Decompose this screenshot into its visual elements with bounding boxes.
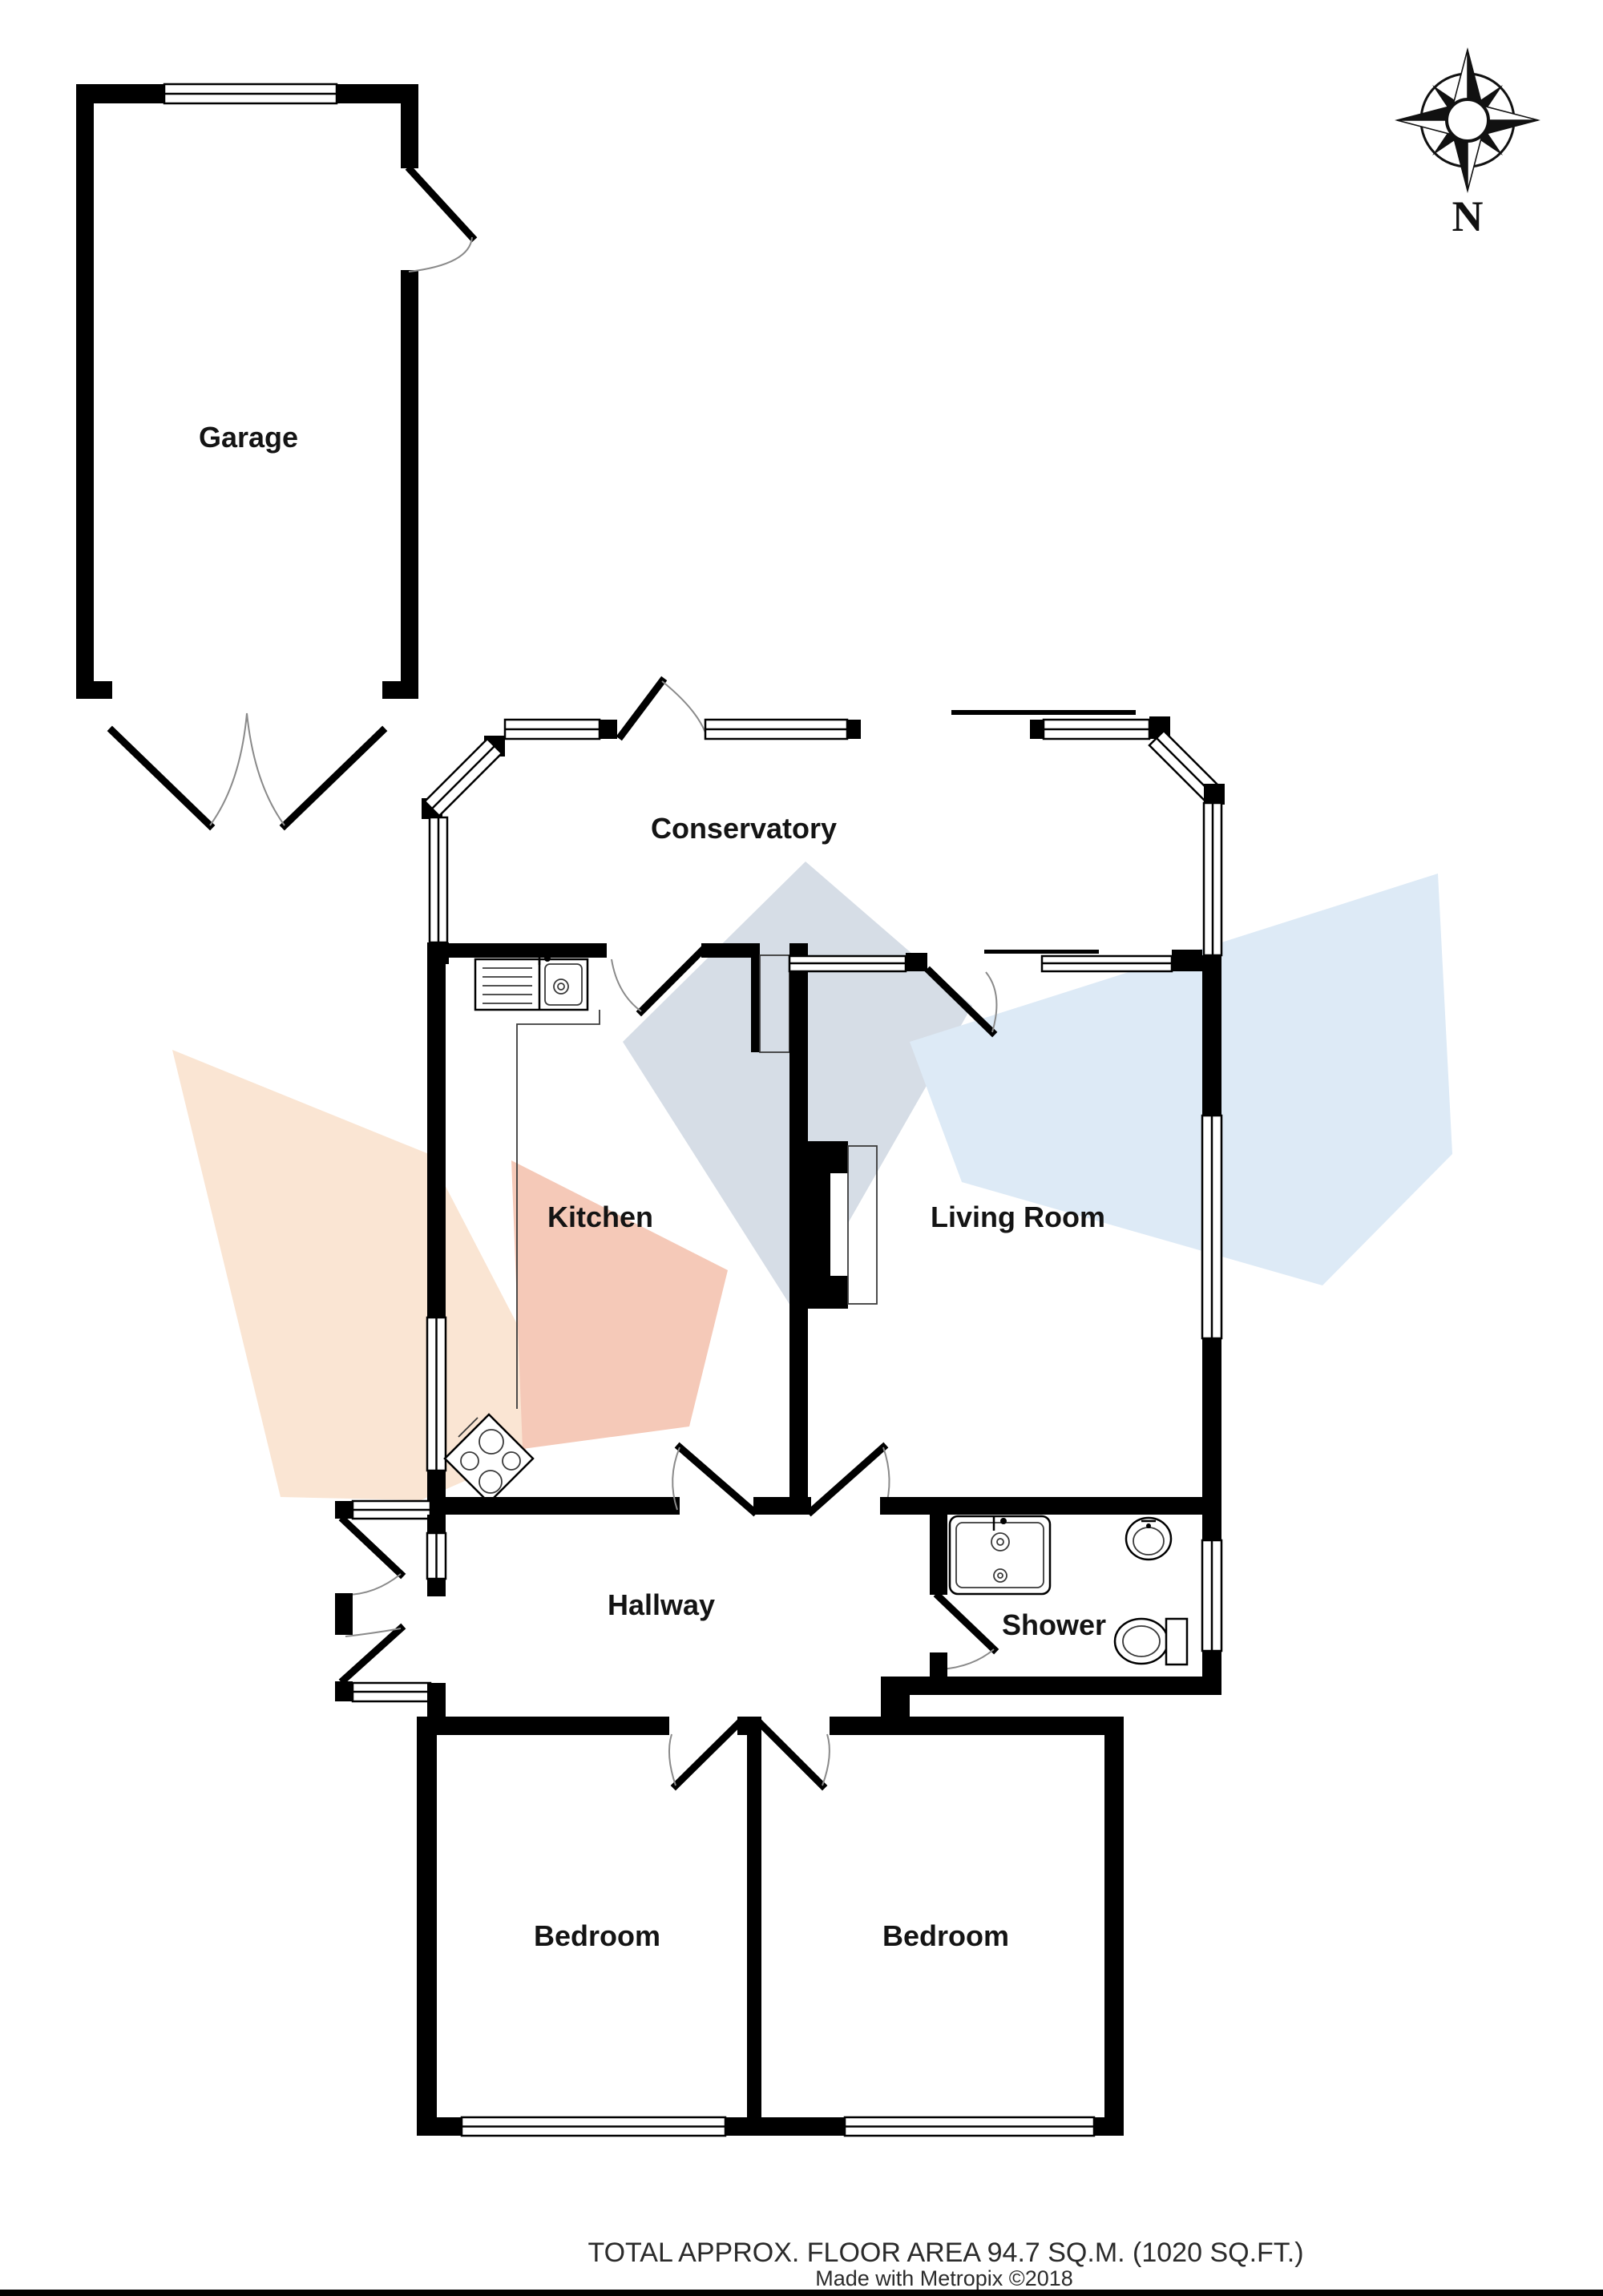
garage-west-wall — [76, 84, 94, 699]
garage-side-door — [409, 170, 472, 272]
conservatory-window-east — [1204, 803, 1221, 955]
conservatory-window-north-3 — [1044, 720, 1149, 739]
conservatory-window-north-2 — [705, 720, 847, 739]
porch-window-south — [353, 1683, 430, 1701]
bedroom-left-west-wall — [417, 1717, 437, 2136]
hallway-north-wall — [427, 1447, 1221, 1515]
kitchen-west-wall — [427, 942, 446, 1317]
livingroom-hallway-door — [811, 1447, 890, 1511]
toilet-icon — [1115, 1619, 1187, 1664]
house-outline-thin-wall — [951, 710, 1136, 715]
shower-west-wall-lower — [930, 1652, 947, 1677]
floor-plan: Garage — [0, 0, 1603, 2296]
garage-double-doors — [112, 713, 382, 825]
room-shower: Shower — [881, 1515, 1221, 1735]
bedroom-right-window — [845, 2117, 1094, 2136]
conservatory-label: Conservatory — [651, 812, 837, 845]
kitchen-sink-icon — [475, 954, 587, 1010]
compass-north-label: N — [1452, 192, 1484, 240]
bedroom-right-east-wall — [1104, 1717, 1124, 2136]
total-floor-area-text: TOTAL APPROX. FLOOR AREA 94.7 SQ.M. (102… — [587, 2237, 1303, 2268]
livingroom-window-north-2 — [1042, 956, 1172, 971]
basin-icon — [1126, 1518, 1171, 1560]
kitchen-hallway-door — [672, 1447, 753, 1511]
conservatory-window-north-1 — [505, 720, 600, 739]
garage-east-wall-upper — [401, 84, 418, 168]
bedroom-left-window — [462, 2117, 725, 2136]
front-door-lower — [344, 1628, 401, 1680]
bottom-border-bar — [0, 2290, 1603, 2296]
bedroom-left-door — [669, 1725, 737, 1786]
room-hallway: Hallway — [608, 1588, 715, 1621]
garage-label: Garage — [199, 421, 298, 454]
shower-tray-icon — [950, 1516, 1050, 1594]
bedroom-right-door — [761, 1725, 830, 1786]
entrance-porch — [335, 1501, 446, 1735]
hallway-label: Hallway — [608, 1588, 715, 1621]
porch-window-north — [353, 1501, 430, 1519]
conservatory-chamfer-window-left — [425, 739, 502, 816]
living-room-label: Living Room — [931, 1200, 1105, 1233]
garage-window-north — [164, 84, 337, 103]
bedroom-divider-wall — [747, 1735, 761, 2136]
shower-west-wall-upper — [930, 1515, 947, 1595]
front-door-upper — [344, 1520, 401, 1595]
livingroom-window-east — [1202, 1116, 1221, 1338]
bedroom-left-label: Bedroom — [534, 1919, 660, 1952]
kitchen-label: Kitchen — [547, 1200, 653, 1233]
livingroom-window-north-1 — [789, 956, 906, 971]
shower-south-wall — [881, 1677, 1221, 1695]
compass-rose-icon: N — [1397, 50, 1538, 240]
room-garage: Garage — [76, 84, 472, 825]
bedrooms: Bedroom Bedroom — [417, 1717, 1124, 2136]
conservatory-north-door — [621, 681, 705, 736]
conservatory-window-west — [430, 817, 447, 942]
footer: TOTAL APPROX. FLOOR AREA 94.7 SQ.M. (102… — [0, 2237, 1603, 2296]
bedroom-right-label: Bedroom — [882, 1919, 1009, 1952]
hall-window-west — [427, 1533, 446, 1579]
shower-label: Shower — [1002, 1608, 1106, 1641]
garage-east-wall-lower — [401, 270, 418, 699]
livingroom-east-wall — [1202, 955, 1221, 1116]
metropix-credit-text: Made with Metropix ©2018 — [815, 2266, 1073, 2290]
kitchen-window-west — [427, 1317, 446, 1471]
shower-window-east — [1202, 1540, 1221, 1651]
